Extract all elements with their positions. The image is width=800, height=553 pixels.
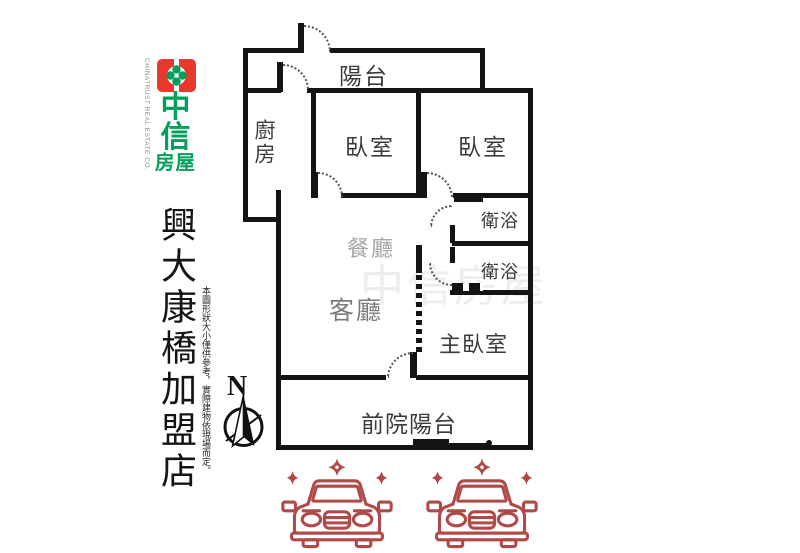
door-leaf [420,172,427,198]
room-label-bathroom-1: 衛浴 [481,207,519,233]
room-label-dining: 餐廳 [347,231,395,263]
gate-dot [486,440,492,446]
wall-segment [243,217,279,222]
wall-segment [276,190,281,450]
room-label-bedroom-2: 臥室 [458,128,508,162]
door-leaf [450,225,455,243]
wall-segment [330,48,485,53]
wall-segment [243,88,281,93]
window-bar [452,283,483,291]
door-leaf [450,247,455,263]
door-arc [304,25,331,52]
room-label-living: 客廳 [329,291,383,327]
door-arc [387,352,413,378]
car-icon [424,458,540,552]
window-bar [454,194,483,202]
gate-track [448,443,490,445]
door-arc [427,172,453,198]
wall-segment [416,245,422,273]
door-leaf [311,172,318,198]
wall-segment [341,193,421,198]
floorplan-page: CHINATRUST REAL ESTATE CO. 中 信 房屋 興大康橋加盟… [0,0,800,553]
chinatrust-logo-icon [156,59,197,93]
logo-char: 信 [155,123,196,153]
company-name-chinese: 中 信 房屋 [155,93,196,174]
wall-segment [416,375,533,380]
room-label-kitchen: 廚房 [249,119,279,167]
wall-segment [243,48,300,53]
store-name: 興大康橋加盟店 [150,206,202,493]
room-label-balcony: 陽台 [339,57,389,91]
door-arc [318,172,343,197]
room-label-front-balcony: 前院陽台 [361,405,457,439]
logo-word: 房屋 [155,154,196,174]
door-arc [430,205,452,227]
wall-segment [528,88,533,450]
disclaimer-text: 本圖形狀大小僅供參考，實際建物依現場而定。 [200,286,213,475]
room-label-master-bedroom: 主臥室 [439,327,508,359]
wall-segment [452,241,533,246]
wall-segment [276,375,386,380]
room-label-bedroom-1: 臥室 [345,128,395,162]
logo-char: 中 [155,93,196,123]
north-arrow-icon [219,394,269,456]
wall-segment [480,48,485,92]
room-label-bathroom-2: 衛浴 [481,258,519,284]
gate-bar [413,439,449,446]
car-icon [279,458,395,552]
wall-dashed-segment [416,275,422,352]
door-arc [283,64,309,90]
wall-segment [243,48,248,222]
wall-segment [276,445,533,450]
company-name-english: CHINATRUST REAL ESTATE CO. [143,58,150,183]
